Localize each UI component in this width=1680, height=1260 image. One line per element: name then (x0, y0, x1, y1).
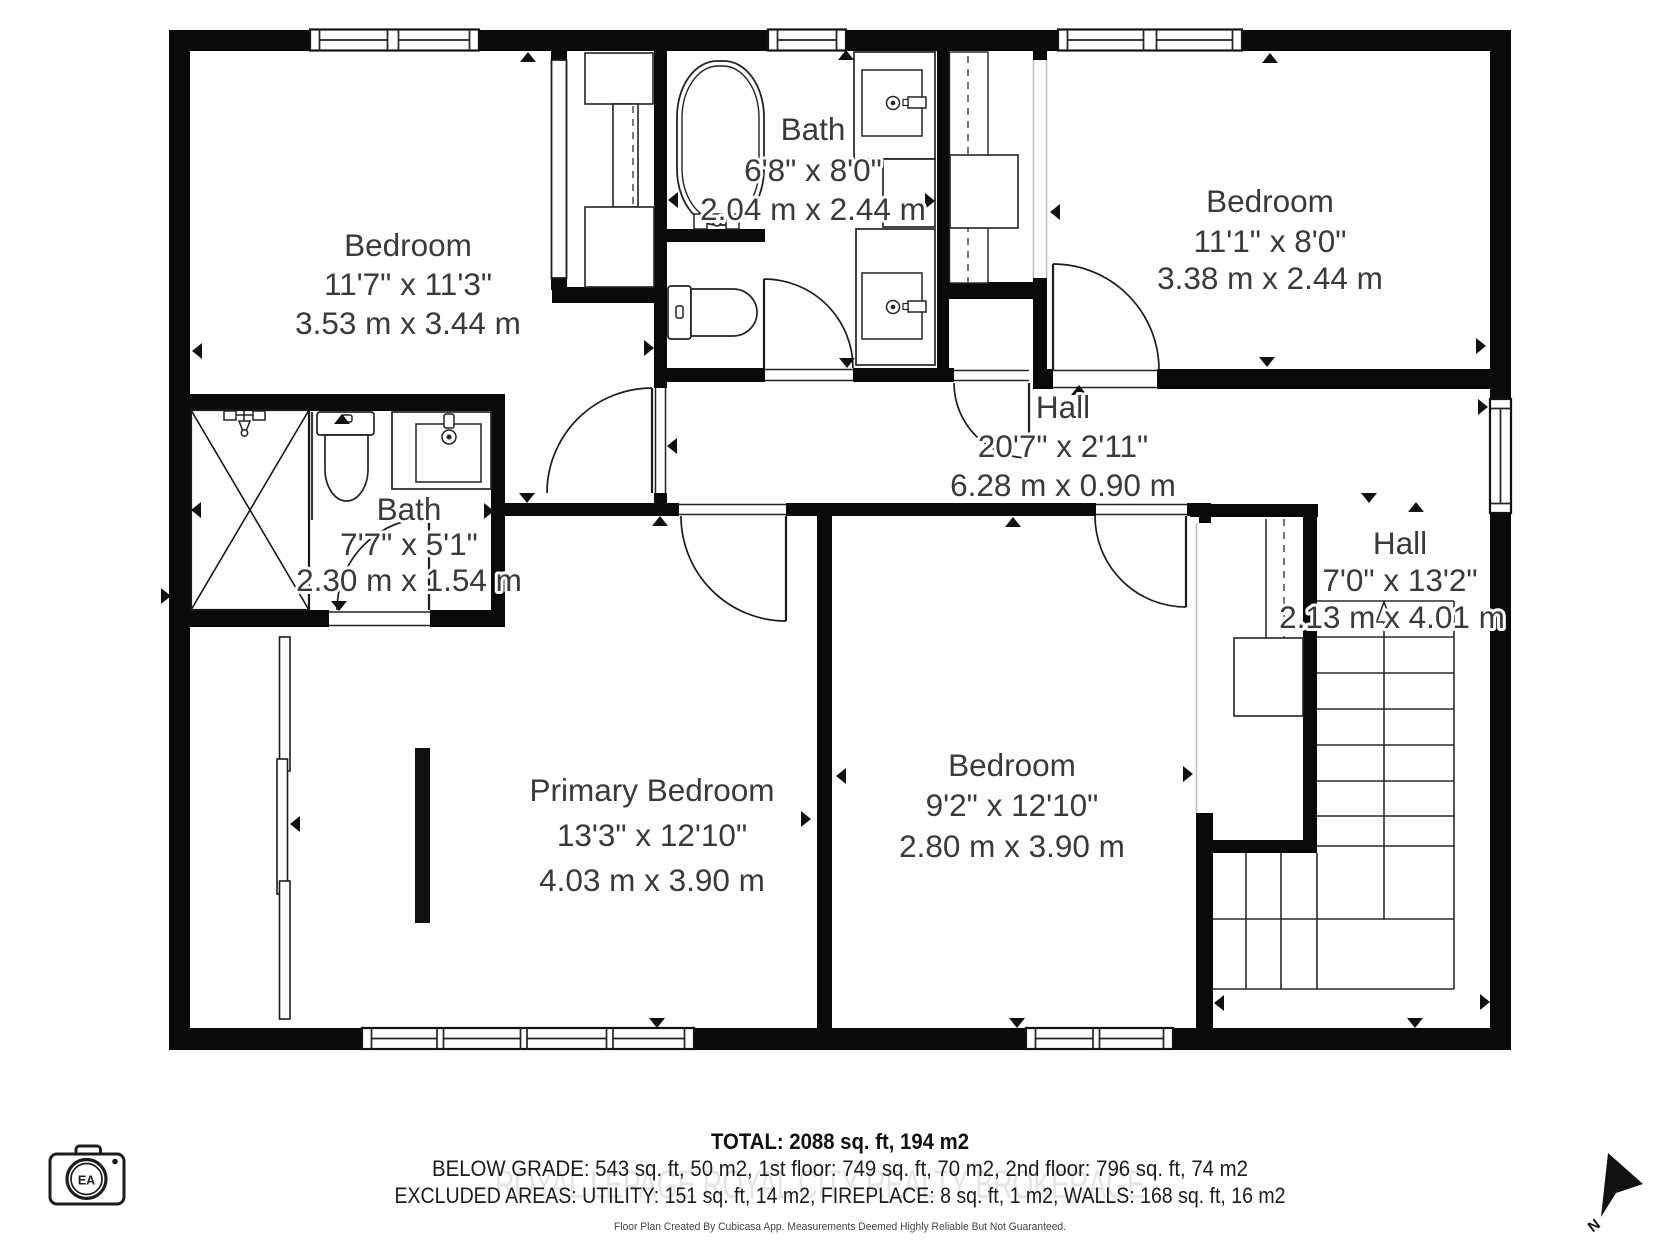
svg-text:7'0" x 13'2": 7'0" x 13'2" (1322, 562, 1477, 598)
svg-text:9'2" x 12'10": 9'2" x 12'10" (926, 787, 1099, 823)
svg-text:4.03 m x 3.90 m: 4.03 m x 3.90 m (539, 862, 765, 898)
svg-text:3.38 m x 2.44 m: 3.38 m x 2.44 m (1157, 260, 1383, 296)
svg-text:Hall: Hall (1373, 525, 1427, 561)
svg-text:6'8" x 8'0": 6'8" x 8'0" (744, 152, 882, 188)
svg-text:2.04 m x 2.44 m: 2.04 m x 2.44 m (700, 191, 926, 227)
svg-text:Bedroom: Bedroom (1206, 183, 1334, 219)
svg-text:Primary Bedroom: Primary Bedroom (529, 772, 774, 808)
svg-text:6.28 m x 0.90 m: 6.28 m x 0.90 m (950, 467, 1176, 503)
svg-text:Bath: Bath (377, 491, 442, 527)
svg-text:2.80 m x 3.90 m: 2.80 m x 3.90 m (899, 828, 1125, 864)
svg-text:BELOW GRADE: 543 sq. ft, 50 m2: BELOW GRADE: 543 sq. ft, 50 m2, 1st floo… (432, 1156, 1248, 1181)
svg-text:7'7" x 5'1": 7'7" x 5'1" (340, 526, 478, 562)
svg-text:EA: EA (78, 1174, 95, 1188)
svg-text:20'7" x 2'11": 20'7" x 2'11" (978, 428, 1148, 464)
svg-text:EXCLUDED AREAS: UTILITY: 151 s: EXCLUDED AREAS: UTILITY: 151 sq. ft, 14 … (395, 1183, 1286, 1208)
svg-text:2.30 m x 1.54 m: 2.30 m x 1.54 m (296, 562, 522, 598)
svg-text:Bedroom: Bedroom (344, 227, 472, 263)
svg-text:3.53 m x 3.44 m: 3.53 m x 3.44 m (295, 305, 521, 341)
svg-text:TOTAL: 2088 sq. ft, 194 m2: TOTAL: 2088 sq. ft, 194 m2 (711, 1129, 969, 1154)
svg-text:Bedroom: Bedroom (948, 747, 1076, 783)
svg-text:11'1" x 8'0": 11'1" x 8'0" (1194, 223, 1347, 259)
svg-text:13'3" x 12'10": 13'3" x 12'10" (557, 817, 747, 853)
svg-text:Hall: Hall (1036, 389, 1090, 425)
svg-text:Floor Plan Created By Cubicasa: Floor Plan Created By Cubicasa App. Meas… (614, 1221, 1066, 1233)
svg-text:11'7" x 11'3": 11'7" x 11'3" (324, 266, 492, 302)
svg-text:Bath: Bath (781, 111, 846, 147)
svg-text:2.13 m x 4.01 m: 2.13 m x 4.01 m (1279, 599, 1505, 635)
